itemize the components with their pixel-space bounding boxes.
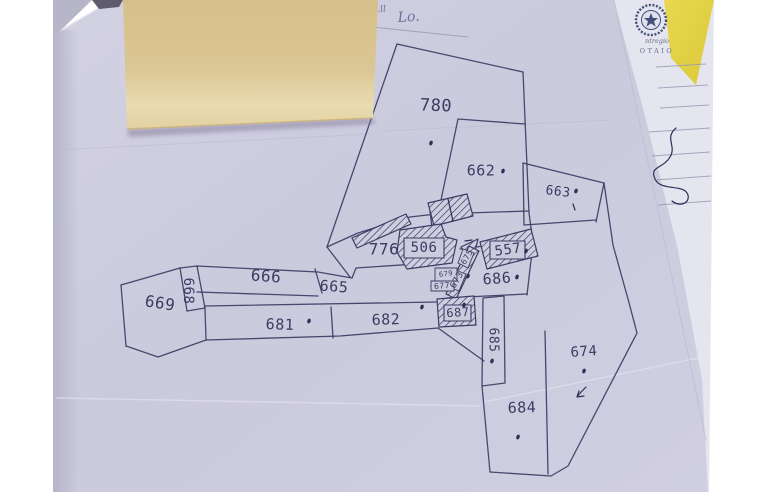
parcel-label-665: 665	[319, 277, 349, 297]
parcel-label-686: 686	[482, 269, 512, 289]
parcel-label-780: 780	[420, 95, 453, 116]
parcel-label-662: 662	[467, 162, 496, 180]
parcel-label-666: 666	[250, 265, 282, 286]
parcel-label-681: 681	[265, 315, 294, 334]
parcel-label-684: 684	[507, 398, 536, 417]
parcel-label-685: 685	[486, 328, 501, 353]
parcel-label-776: 776	[369, 240, 399, 259]
sticky-note	[123, 0, 378, 137]
parcel-label-682: 682	[371, 310, 400, 329]
parcel-label-663: 663	[545, 183, 572, 201]
parcel-label-506: 506	[411, 240, 438, 256]
parcel-label-677: 677	[434, 281, 451, 291]
parcel-label-687: 687	[446, 305, 470, 321]
photo: ntregio OTAIO 78066266377650655766666566…	[0, 0, 764, 492]
letterhead-line1: ntregio	[645, 37, 669, 45]
photo-canvas: ntregio OTAIO 78066266377650655766666566…	[0, 0, 764, 492]
parcel-label-668: 668	[180, 278, 196, 305]
parcel-label-674: 674	[570, 343, 598, 361]
handwriting-word: Lo.	[396, 8, 420, 26]
letterhead-line2: OTAIO	[640, 47, 674, 55]
